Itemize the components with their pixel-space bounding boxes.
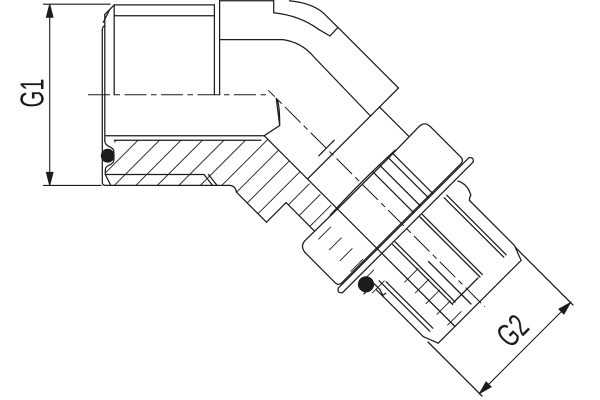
svg-text:G1: G1: [14, 78, 51, 107]
